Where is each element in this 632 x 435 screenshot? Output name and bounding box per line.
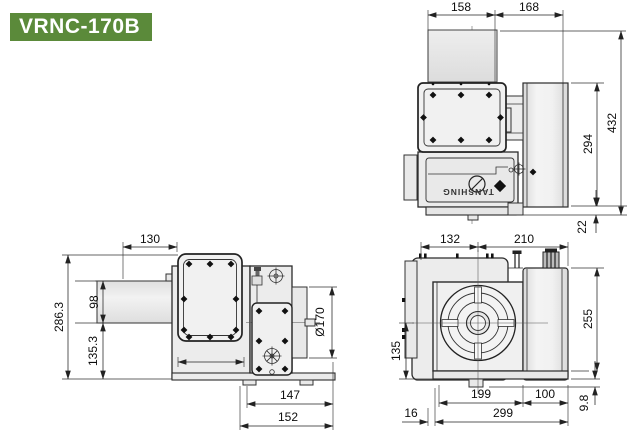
plan-body: TANSHING	[418, 152, 536, 220]
front-dim-center-height: 135	[389, 341, 403, 361]
side-dim-base-width: 152	[278, 410, 298, 424]
side-table-plate	[178, 254, 242, 341]
side-motor-block	[97, 281, 178, 323]
front-view: 132 210 255 135 199 100 29	[389, 232, 604, 426]
plan-motor-block	[428, 30, 497, 82]
plan-dim-plate-width: 158	[451, 0, 471, 14]
front-dim-center-to-left: 132	[440, 232, 460, 246]
plan-view: TANSHING 158 168	[404, 0, 627, 234]
side-cover-plate	[252, 303, 292, 375]
front-left-bracket	[402, 261, 417, 358]
technical-drawing: TANSHING 158 168	[0, 0, 632, 435]
side-dim-gearbox-width: 147	[280, 388, 300, 402]
plan-dim-body-length: 294	[581, 134, 595, 154]
plan-dim-housing-width: 168	[519, 0, 539, 14]
plan-dim-overall-length: 432	[605, 113, 619, 133]
side-dim-motor-height: 98	[87, 295, 101, 309]
model-number: VRNC-170B	[19, 15, 140, 38]
plan-table-plate	[418, 83, 506, 152]
front-dim-foot-height: 9.8	[577, 394, 591, 411]
brand-label: TANSHING	[442, 187, 494, 197]
front-dim-center-to-right: 210	[514, 232, 534, 246]
front-dim-base-offset: 16	[404, 406, 418, 420]
front-dim-motor-width: 100	[535, 387, 555, 401]
motor-connector-icon	[513, 249, 560, 269]
side-view: 130 286.3 98 135.3 Ø170 1	[52, 232, 337, 430]
front-foot	[469, 379, 483, 387]
model-badge: VRNC-170B	[10, 13, 152, 41]
side-dim-faceplate-diameter: Ø170	[313, 307, 327, 337]
front-dim-overall-width: 299	[493, 406, 513, 420]
plan-left-bracket	[404, 155, 417, 200]
side-dim-overall-height: 286.3	[52, 302, 66, 332]
drawing-canvas: TANSHING 158 168	[0, 0, 632, 435]
front-dim-body-width: 199	[471, 387, 491, 401]
plan-dim-foot-depth: 22	[575, 220, 589, 234]
front-dim-body-height: 255	[581, 309, 595, 329]
side-dim-motor-length: 130	[140, 232, 160, 246]
side-dim-center-height: 135.3	[86, 336, 100, 366]
plan-motor-housing	[523, 83, 568, 207]
front-base	[433, 371, 568, 379]
